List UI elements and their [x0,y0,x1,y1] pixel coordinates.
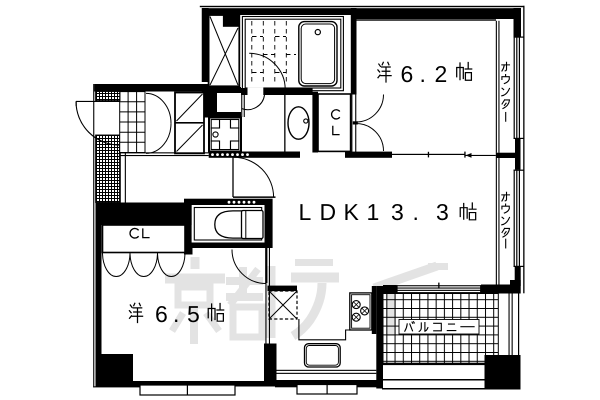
svg-text:6: 6 [155,301,168,327]
svg-text:3: 3 [436,199,449,225]
svg-text:L: L [299,199,312,225]
svg-text:3: 3 [391,199,404,225]
svg-text:2: 2 [435,61,448,87]
svg-text:.: . [413,199,419,225]
svg-text:.: . [173,301,179,327]
svg-text:K: K [344,199,360,225]
svg-text:1: 1 [367,199,380,225]
svg-text:5: 5 [187,301,200,327]
svg-text:6: 6 [401,61,414,87]
svg-text:D: D [320,199,337,225]
svg-text:.: . [420,61,426,87]
